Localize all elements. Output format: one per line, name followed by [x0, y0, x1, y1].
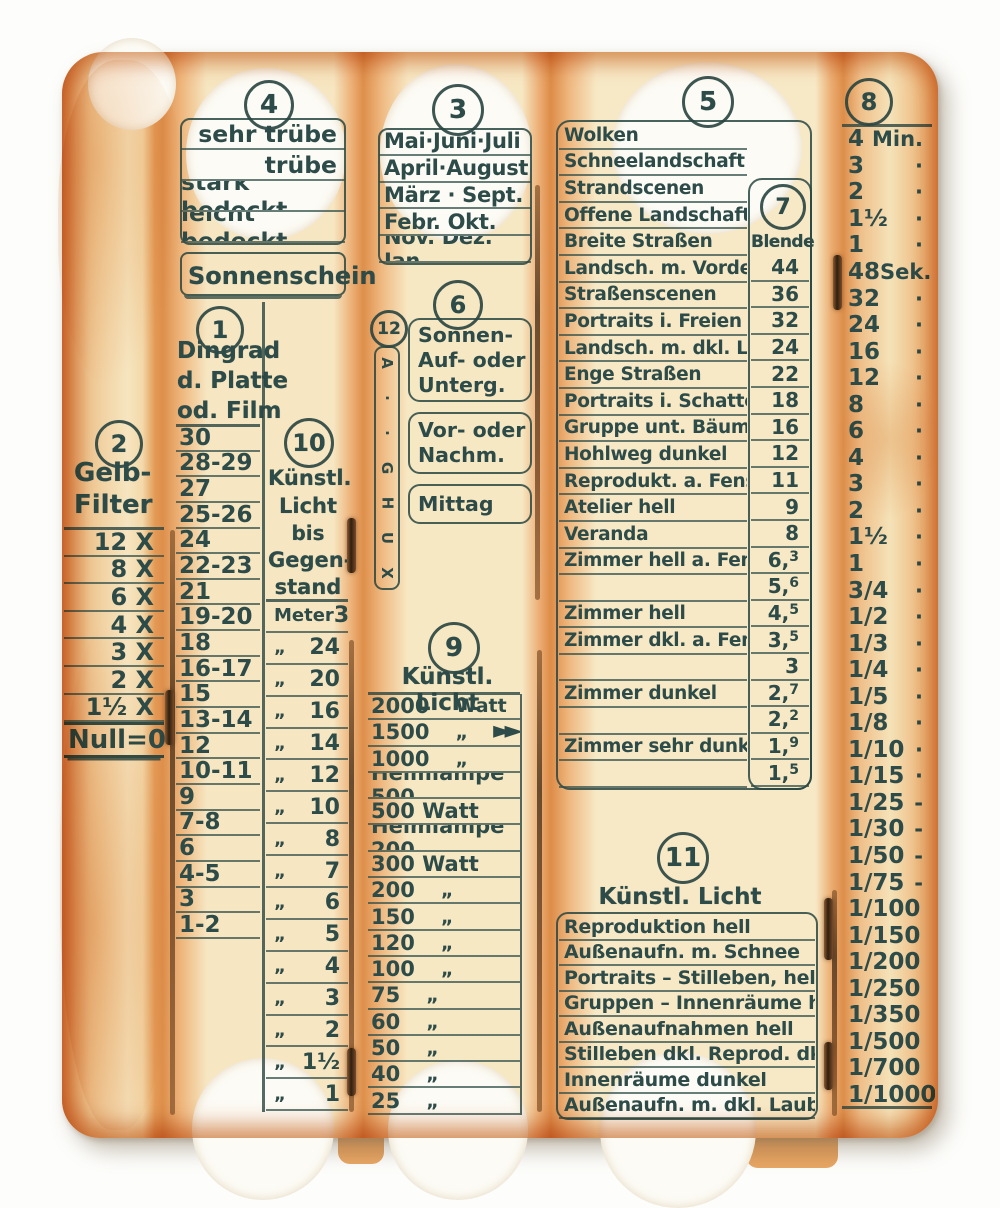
time-value: 1/3 [848, 631, 888, 657]
time-value: 2 [848, 179, 864, 205]
time-row: 1/4 · [842, 657, 935, 684]
distance-header: Gegen- [268, 548, 348, 572]
time-row: 2 · [842, 179, 935, 206]
distance-unit: „ [266, 733, 286, 754]
time-value: 1 [848, 232, 864, 258]
time-value: 1/250 [848, 976, 920, 1002]
scale-number: 8 [861, 88, 878, 116]
filter-title: Gelb- [74, 458, 151, 488]
scene-label: Wolken [564, 125, 639, 146]
slider-seam [349, 640, 354, 1112]
blende-row: 36 [751, 282, 809, 309]
time-value: 1/100 [848, 896, 920, 922]
blende-row: 3,5 [751, 627, 809, 654]
blende-row: 6,3 [751, 548, 809, 575]
distance-row: „ 4 [266, 952, 348, 984]
film-value: 30 [179, 426, 211, 451]
months-scale: Mai·Juni·JuliApril·AugustMärz · Sept.Feb… [379, 129, 531, 263]
watt-row: 40 „ [368, 1062, 520, 1088]
scale-number: 3 [449, 95, 467, 125]
letter-glyph: U [378, 532, 396, 544]
watt-unit: „ [426, 984, 439, 1006]
watt-scale: 2000 Watt 1500 „ ►► 1000 „ Heimlampe 500… [368, 694, 522, 1115]
watt-unit: „ [441, 879, 454, 901]
time-value: 16 [848, 339, 880, 365]
weather-row: leicht bedeckt [181, 212, 345, 243]
artificial-label: Innenräume dunkel [564, 1069, 767, 1091]
blende-decimal: 5 [789, 602, 799, 618]
watt-value: 200 [371, 878, 415, 902]
scene-label: Landsch. m. dkl. Laub [564, 338, 747, 359]
time-row: 1/30 - [842, 816, 935, 843]
scene-label: Breite Straßen [564, 231, 713, 252]
time-row: 1 · [842, 551, 935, 578]
blende-value: 9 [785, 495, 799, 519]
month-label: April·August [384, 156, 528, 180]
time-row: 1/250 [842, 976, 935, 1003]
scene-row: Strandscenen [559, 176, 747, 203]
time-value: 1/1000 [848, 1082, 935, 1108]
time-value: 1½ [848, 206, 888, 232]
time-value: 6 [848, 418, 864, 444]
daytime-box-sunrise: Sonnen-Auf- oderUnterg. [408, 318, 532, 402]
time-unit: · [915, 685, 935, 709]
weather-label: leicht bedeckt [181, 212, 337, 243]
watt-row: 2000 Watt [368, 694, 520, 720]
watt-value: 50 [371, 1036, 400, 1060]
blende-value: 24 [771, 335, 799, 359]
distance-row: „ 3 [266, 984, 348, 1016]
blende-decimal: 3 [789, 549, 799, 565]
scale-number-badge: 7 [760, 184, 806, 230]
film-value: 18 [179, 631, 211, 656]
staple [347, 518, 356, 573]
time-row: 1½ · [842, 524, 935, 551]
blende-row: 12 [751, 441, 809, 468]
letter-glyph: X [378, 567, 396, 579]
watt-row: 50 „ [368, 1036, 520, 1062]
film-value: 13-14 [179, 708, 253, 733]
scene-label: Atelier hell [564, 497, 675, 518]
daytime-label: Mittag [418, 492, 530, 517]
film-value: 25-26 [179, 503, 253, 528]
time-row: 1/10 · [842, 737, 935, 764]
column-divider [262, 302, 265, 1112]
time-row: 1/25 - [842, 790, 935, 817]
watt-row: 1500 „ ►► [368, 720, 520, 746]
watt-unit: „ [441, 958, 454, 980]
distance-unit: „ [266, 1020, 286, 1041]
time-row: 6 · [842, 418, 935, 445]
watt-unit: „ [426, 1011, 439, 1033]
scene-label: Hohlweg dunkel [564, 444, 727, 465]
watt-row: 100 „ [368, 957, 520, 983]
artificial-label: Außenaufn. m. Schnee [564, 941, 800, 963]
distance-unit: Meter [266, 605, 334, 626]
distance-scale: Meter 30 „ 24 „ 20 „ 16 „ 14 „ 12 „ 10 „… [266, 601, 348, 1111]
time-row: 3 · [842, 153, 935, 180]
pointer-arrow-icon: ►► [493, 720, 516, 744]
time-value: 1/15 [848, 763, 904, 789]
blende-value: 1, [768, 734, 790, 758]
time-row: 32 · [842, 285, 935, 312]
time-value: 1½ [848, 524, 888, 550]
distance-row: „ 24 [266, 633, 348, 665]
distance-value: 12 [309, 763, 348, 788]
scale-number: 7 [775, 195, 790, 220]
scene-label: Straßenscenen [564, 284, 716, 305]
film-row: 16-17 [176, 657, 260, 683]
time-row: 1/200 [842, 949, 935, 976]
scene-label: Zimmer hell [564, 603, 686, 624]
film-row: 10-11 [176, 759, 260, 785]
distance-unit: „ [266, 861, 286, 882]
watt-value: 2000 [371, 694, 429, 718]
watt-value: 40 [371, 1062, 400, 1086]
blende-value: 2, [768, 681, 790, 705]
distance-value: 10 [309, 795, 348, 820]
scene-label: Portraits i. Schatten [564, 391, 747, 412]
scene-row: Zimmer dunkel [559, 681, 747, 708]
watt-unit: „ [426, 1037, 439, 1059]
film-row: 1-2 [176, 913, 260, 939]
weather-row: stark bedeckt [181, 181, 345, 212]
time-value: 1/200 [848, 949, 920, 975]
blende-value: 44 [771, 255, 799, 279]
time-row: 1/2 · [842, 604, 935, 631]
scene-row [559, 575, 747, 602]
scene-label: Schneelandschaft [564, 151, 745, 172]
scene-row: Landsch. m. Vordergr. [559, 256, 747, 283]
film-row: 13-14 [176, 708, 260, 734]
blende-value: 5, [768, 574, 790, 598]
distance-header: stand [268, 575, 348, 599]
time-row: 2 · [842, 498, 935, 525]
weather-row: sehr trübe [181, 119, 345, 150]
blende-value: 36 [771, 282, 799, 306]
distance-value: 24 [309, 635, 348, 660]
time-unit: · [915, 764, 935, 788]
time-value: 4 [848, 445, 864, 471]
watt-value: 500 Watt [371, 799, 479, 823]
letter-strip: A··GHUX [374, 346, 400, 590]
staple [165, 690, 174, 745]
time-value: 1/4 [848, 657, 888, 683]
time-unit: · [915, 313, 935, 337]
scene-row: Enge Straßen [559, 362, 747, 389]
time-value: 1/8 [848, 710, 888, 736]
film-value: 7-8 [179, 811, 221, 836]
watt-value: 100 [371, 957, 415, 981]
blende-row: 1,5 [751, 760, 809, 787]
scene-row: Zimmer dkl. a. Fenster [559, 628, 747, 655]
watt-row: 25 „ [368, 1088, 520, 1114]
scale-number: 6 [450, 291, 467, 319]
time-value: 8 [848, 392, 864, 418]
film-value: 1-2 [179, 913, 221, 938]
time-unit: · [915, 738, 935, 762]
blende-scale: 44 36 32 24 22 18 16 12 11 9 8 6,3 5,6 4… [751, 255, 809, 787]
time-value: 1/350 [848, 1002, 920, 1028]
scene-label: Zimmer dkl. a. Fenster [564, 630, 747, 651]
scene-row: Reprodukt. a. Fenster [559, 469, 747, 496]
letter-glyph: · [378, 395, 396, 401]
blende-row: 16 [751, 415, 809, 442]
scale-number-badge: 8 [845, 78, 893, 126]
filter-value: 2 X [110, 667, 154, 694]
distance-unit: „ [266, 1052, 286, 1073]
time-unit: · [915, 579, 935, 603]
distance-unit: „ [266, 701, 286, 722]
staple [824, 1042, 833, 1090]
time-row: 1/100 [842, 896, 935, 923]
film-scale: 3028-292725-262422-232119-201816-171513-… [176, 426, 260, 939]
scene-row: Hohlweg dunkel [559, 442, 747, 469]
filter-row: 12 X [64, 529, 164, 557]
distance-value: 30 [334, 603, 348, 628]
film-row: 7-8 [176, 811, 260, 837]
scene-row: Straßenscenen [559, 283, 747, 310]
time-row: 8 · [842, 391, 935, 418]
time-value: 3 [848, 153, 864, 179]
time-value: 1/2 [848, 604, 888, 630]
distance-row: „ 16 [266, 697, 348, 729]
artificial-label: Stilleben dkl. Reprod. dkl. [564, 1043, 815, 1065]
watt-unit: Watt [455, 695, 506, 717]
distance-value: 1½ [302, 1050, 348, 1075]
blende-row: 2,7 [751, 681, 809, 708]
watt-unit: „ [426, 1090, 439, 1112]
time-value: 3/4 [848, 578, 888, 604]
filter-value: 4 X [110, 612, 154, 639]
time-unit: - [914, 844, 935, 868]
distance-unit: „ [266, 765, 286, 786]
watt-row: 120 „ [368, 931, 520, 957]
film-value: 4-5 [179, 862, 221, 887]
film-header: Dingrad [177, 338, 280, 364]
film-row: 19-20 [176, 605, 260, 631]
filter-value: 1½ X [86, 695, 154, 722]
scene-label: Enge Straßen [564, 364, 701, 385]
watt-row: 60 „ [368, 1010, 520, 1036]
scale-number: 2 [111, 430, 128, 458]
watt-value: 60 [371, 1010, 400, 1034]
artificial-row: Stilleben dkl. Reprod. dkl. [559, 1043, 815, 1069]
film-row: 3 [176, 888, 260, 914]
time-unit: · [915, 287, 935, 311]
filter-title: Filter [74, 490, 152, 520]
filter-zero-wrap: Null=0 [64, 722, 164, 758]
film-value: 24 [179, 529, 211, 554]
artificial-row: Reproduktion hell [559, 915, 815, 941]
scenes-scale: WolkenSchneelandschaftStrandscenenOffene… [559, 123, 747, 788]
watt-value: Heimlampe 200 [371, 825, 504, 851]
distance-row: Meter 30 [266, 601, 348, 633]
artificial-row: Außenaufnahmen hell [559, 1017, 815, 1043]
artificial-scale: Reproduktion hellAußenaufn. m. SchneePor… [559, 915, 815, 1119]
film-value: 27 [179, 477, 211, 502]
time-row: 1 · [842, 232, 935, 259]
distance-value: 8 [325, 827, 348, 852]
film-header: d. Platte [177, 368, 288, 394]
slider-seam [537, 650, 542, 1112]
scene-row: Gruppe unt. Bäumen [559, 416, 747, 443]
watt-row: Heimlampe 500 [368, 773, 520, 799]
distance-unit: „ [266, 924, 286, 945]
exposure-calculator-scan: 2 Gelb- Filter 12 X8 X6 X4 X3 X2 X1½ X N… [0, 0, 1000, 1208]
staple [824, 898, 833, 960]
blende-value: 3, [768, 628, 790, 652]
distance-row: „ 20 [266, 665, 348, 697]
scale-number-badge: 12 [370, 310, 408, 348]
film-row: 22-23 [176, 554, 260, 580]
distance-unit: „ [266, 797, 286, 818]
time-row: 48 Sek. [842, 259, 935, 286]
scale-number: 5 [699, 87, 717, 117]
time-value: 1/5 [848, 684, 888, 710]
distance-value: 2 [325, 1018, 348, 1043]
blende-value: 6, [768, 548, 790, 572]
watt-unit: „ [441, 932, 454, 954]
film-row: 4-5 [176, 862, 260, 888]
distance-row: „ 2 [266, 1016, 348, 1048]
time-unit: · [915, 340, 935, 364]
time-unit: Sek. [880, 260, 935, 284]
watt-row: 500 Watt [368, 799, 520, 825]
scene-row: Schneelandschaft [559, 150, 747, 177]
weather-label: stark bedeckt [181, 181, 337, 212]
letter-glyph: · [378, 430, 396, 436]
filter-row: 2 X [64, 667, 164, 695]
slider-seam [535, 185, 540, 600]
blende-row: 5,6 [751, 574, 809, 601]
scale-number: 10 [292, 429, 325, 457]
scene-label: Zimmer dunkel [564, 683, 717, 704]
film-value: 9 [179, 785, 195, 810]
distance-unit: „ [266, 669, 286, 690]
distance-header: Licht [268, 494, 348, 518]
blende-row: 1,9 [751, 734, 809, 761]
weather-scale: sehr trübetrübestark bedecktleicht bedec… [181, 119, 345, 243]
scene-row: Wolken [559, 123, 747, 150]
blende-value: 1, [768, 761, 790, 785]
distance-value: 4 [325, 954, 348, 979]
time-row: 24 · [842, 312, 935, 339]
watt-value: 75 [371, 983, 400, 1007]
artificial-label: Reproduktion hell [564, 916, 750, 938]
distance-unit: „ [266, 988, 286, 1009]
time-value: 1/150 [848, 923, 920, 949]
time-row: 12 · [842, 365, 935, 392]
filter-row: 6 X [64, 584, 164, 612]
blende-value: 11 [771, 468, 799, 492]
film-row: 15 [176, 682, 260, 708]
time-row: 1/1000 [842, 1082, 935, 1109]
daytime-label: Sonnen- [418, 323, 530, 348]
artificial-label: Portraits – Stilleben, hell [564, 967, 815, 989]
blende-row: 18 [751, 388, 809, 415]
film-value: 19-20 [179, 605, 253, 630]
film-row: 12 [176, 734, 260, 760]
film-row: 24 [176, 529, 260, 555]
sunshine-label: Sonnenschein [188, 262, 350, 290]
distance-value: 6 [325, 890, 348, 915]
watt-unit: „ [426, 1063, 439, 1085]
film-row: 25-26 [176, 503, 260, 529]
watt-value: 25 [371, 1089, 400, 1113]
blende-row: 32 [751, 308, 809, 335]
filter-value: 12 X [94, 529, 154, 556]
time-value: 1/700 [848, 1055, 920, 1081]
time-value: 4 [848, 126, 864, 152]
weather-row: trübe [181, 150, 345, 181]
scene-label: Landsch. m. Vordergr. [564, 258, 747, 279]
weather-label: sehr trübe [198, 120, 337, 148]
watt-value: 1500 [371, 720, 429, 744]
time-unit: · [915, 605, 935, 629]
film-row: 6 [176, 836, 260, 862]
distance-unit: „ [266, 637, 286, 658]
month-label: März · Sept. [384, 183, 523, 207]
distance-row: „ 1 [266, 1079, 348, 1111]
time-unit: · [915, 711, 935, 735]
watt-value: 1000 [371, 747, 429, 771]
distance-unit: „ [266, 956, 286, 977]
month-row: Mai·Juni·Juli [379, 129, 531, 156]
film-value: 28-29 [179, 452, 253, 477]
film-value: 15 [179, 682, 211, 707]
time-value: 32 [848, 286, 880, 312]
filter-zero: Null=0 [64, 722, 164, 758]
scene-label: Gruppe unt. Bäumen [564, 417, 747, 438]
blende-decimal: 2 [789, 708, 799, 724]
time-row: 1/8 · [842, 710, 935, 737]
film-row: 21 [176, 580, 260, 606]
month-row: April·August [379, 156, 531, 183]
time-row: 1/150 [842, 922, 935, 949]
time-unit: · [915, 233, 935, 257]
watt-row: 1000 „ [368, 747, 520, 773]
time-value: 24 [848, 312, 880, 338]
time-row: 3 · [842, 471, 935, 498]
time-value: 12 [848, 365, 880, 391]
scale-number: 9 [445, 633, 463, 663]
blende-value: 12 [771, 441, 799, 465]
filter-row: 8 X [64, 557, 164, 585]
distance-row: „ 8 [266, 824, 348, 856]
watt-unit: „ [441, 906, 454, 928]
time-value: 1/10 [848, 737, 904, 763]
month-row: Febr. Okt. [379, 209, 531, 236]
letter-glyph: A [378, 357, 396, 369]
blende-decimal: 5 [789, 762, 799, 778]
blende-value: 18 [771, 388, 799, 412]
distance-value: 7 [325, 859, 348, 884]
blende-title: Blende [751, 232, 814, 252]
blende-decimal: 9 [789, 735, 799, 751]
distance-header: bis [268, 521, 348, 545]
rule-line [842, 1106, 932, 1109]
staple [347, 1048, 356, 1096]
distance-value: 5 [325, 922, 348, 947]
scale-number: 11 [665, 843, 701, 873]
time-unit: · [915, 472, 935, 496]
daytime-box-noon: Mittag [408, 484, 532, 524]
scene-row [559, 708, 747, 735]
time-row: 4 Min. [842, 126, 935, 153]
blende-row: 24 [751, 335, 809, 362]
time-unit: · [915, 552, 935, 576]
